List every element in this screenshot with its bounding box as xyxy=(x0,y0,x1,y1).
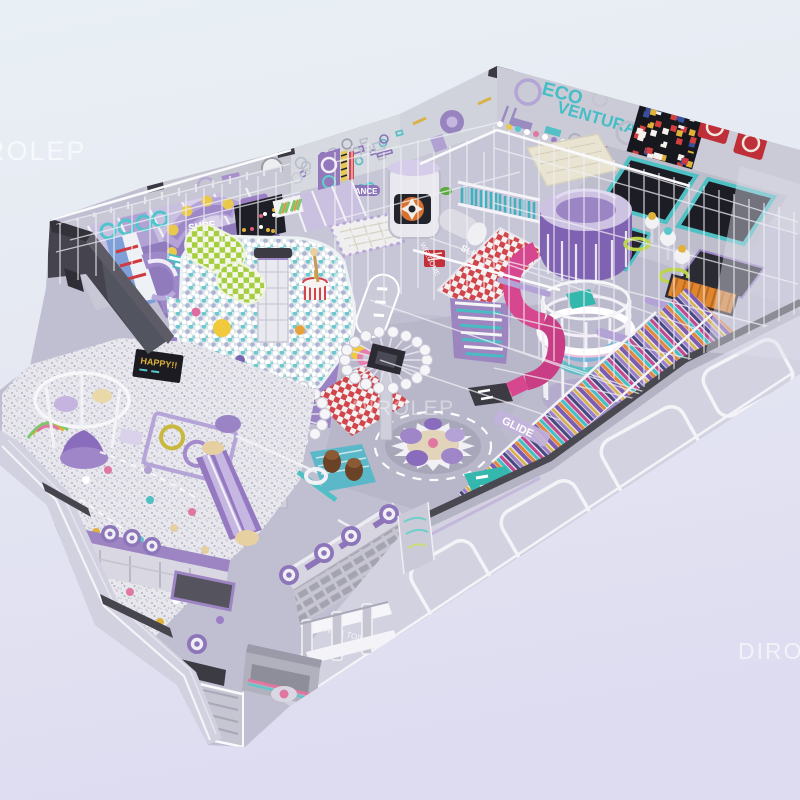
svg-text:DIROLEP: DIROLEP xyxy=(0,136,87,166)
svg-text:DIROLEP: DIROLEP xyxy=(738,638,800,664)
svg-text:DIROLEP: DIROLEP xyxy=(352,397,455,420)
